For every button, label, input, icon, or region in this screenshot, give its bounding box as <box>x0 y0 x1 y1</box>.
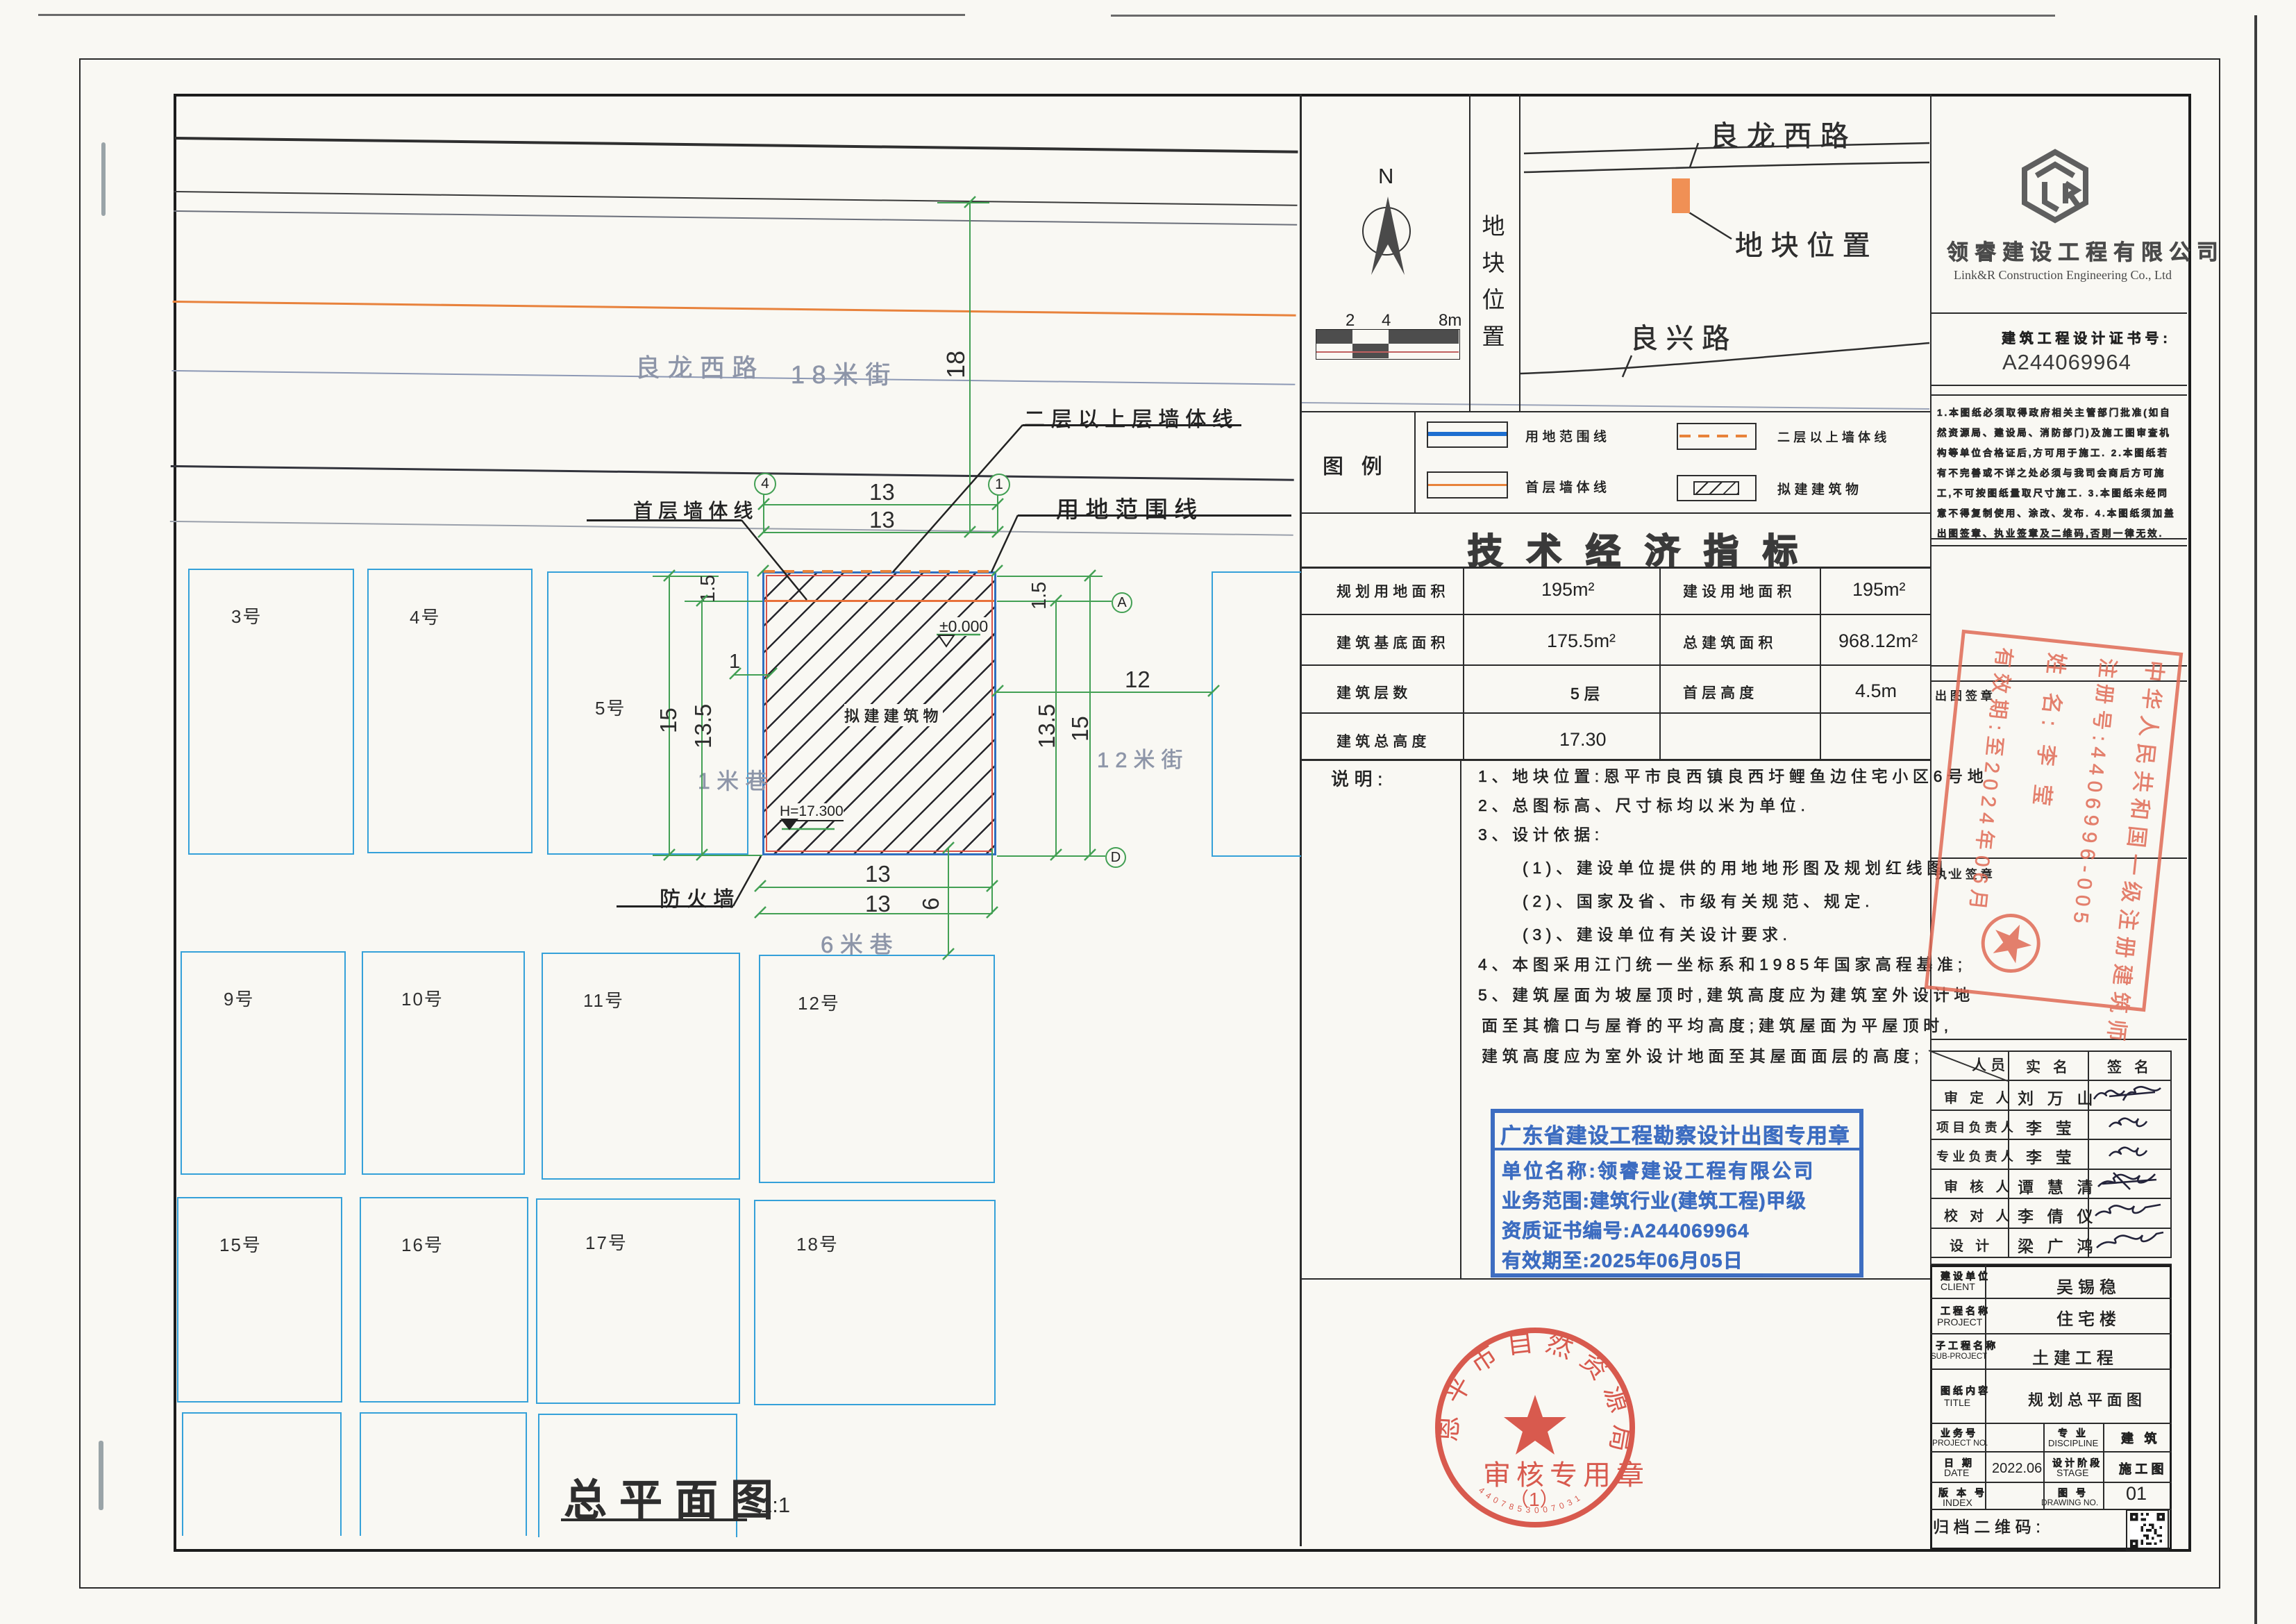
svg-text:恩平市自然资源局: 恩平市自然资源局 <box>1434 1327 1638 1464</box>
svg-text:审核专用章: 审核专用章 <box>1483 1460 1643 1491</box>
svg-text:（1）: （1） <box>1509 1489 1559 1510</box>
